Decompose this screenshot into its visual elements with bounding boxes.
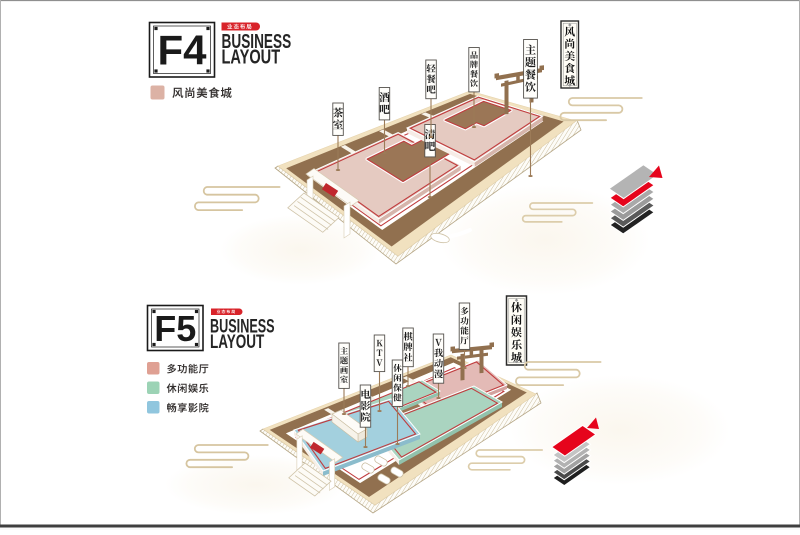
svg-text:LAYOUT: LAYOUT	[210, 332, 265, 353]
svg-text:F5: F5	[154, 308, 196, 349]
svg-text:F4: F4	[157, 27, 207, 74]
svg-text:LAYOUT: LAYOUT	[222, 45, 281, 68]
